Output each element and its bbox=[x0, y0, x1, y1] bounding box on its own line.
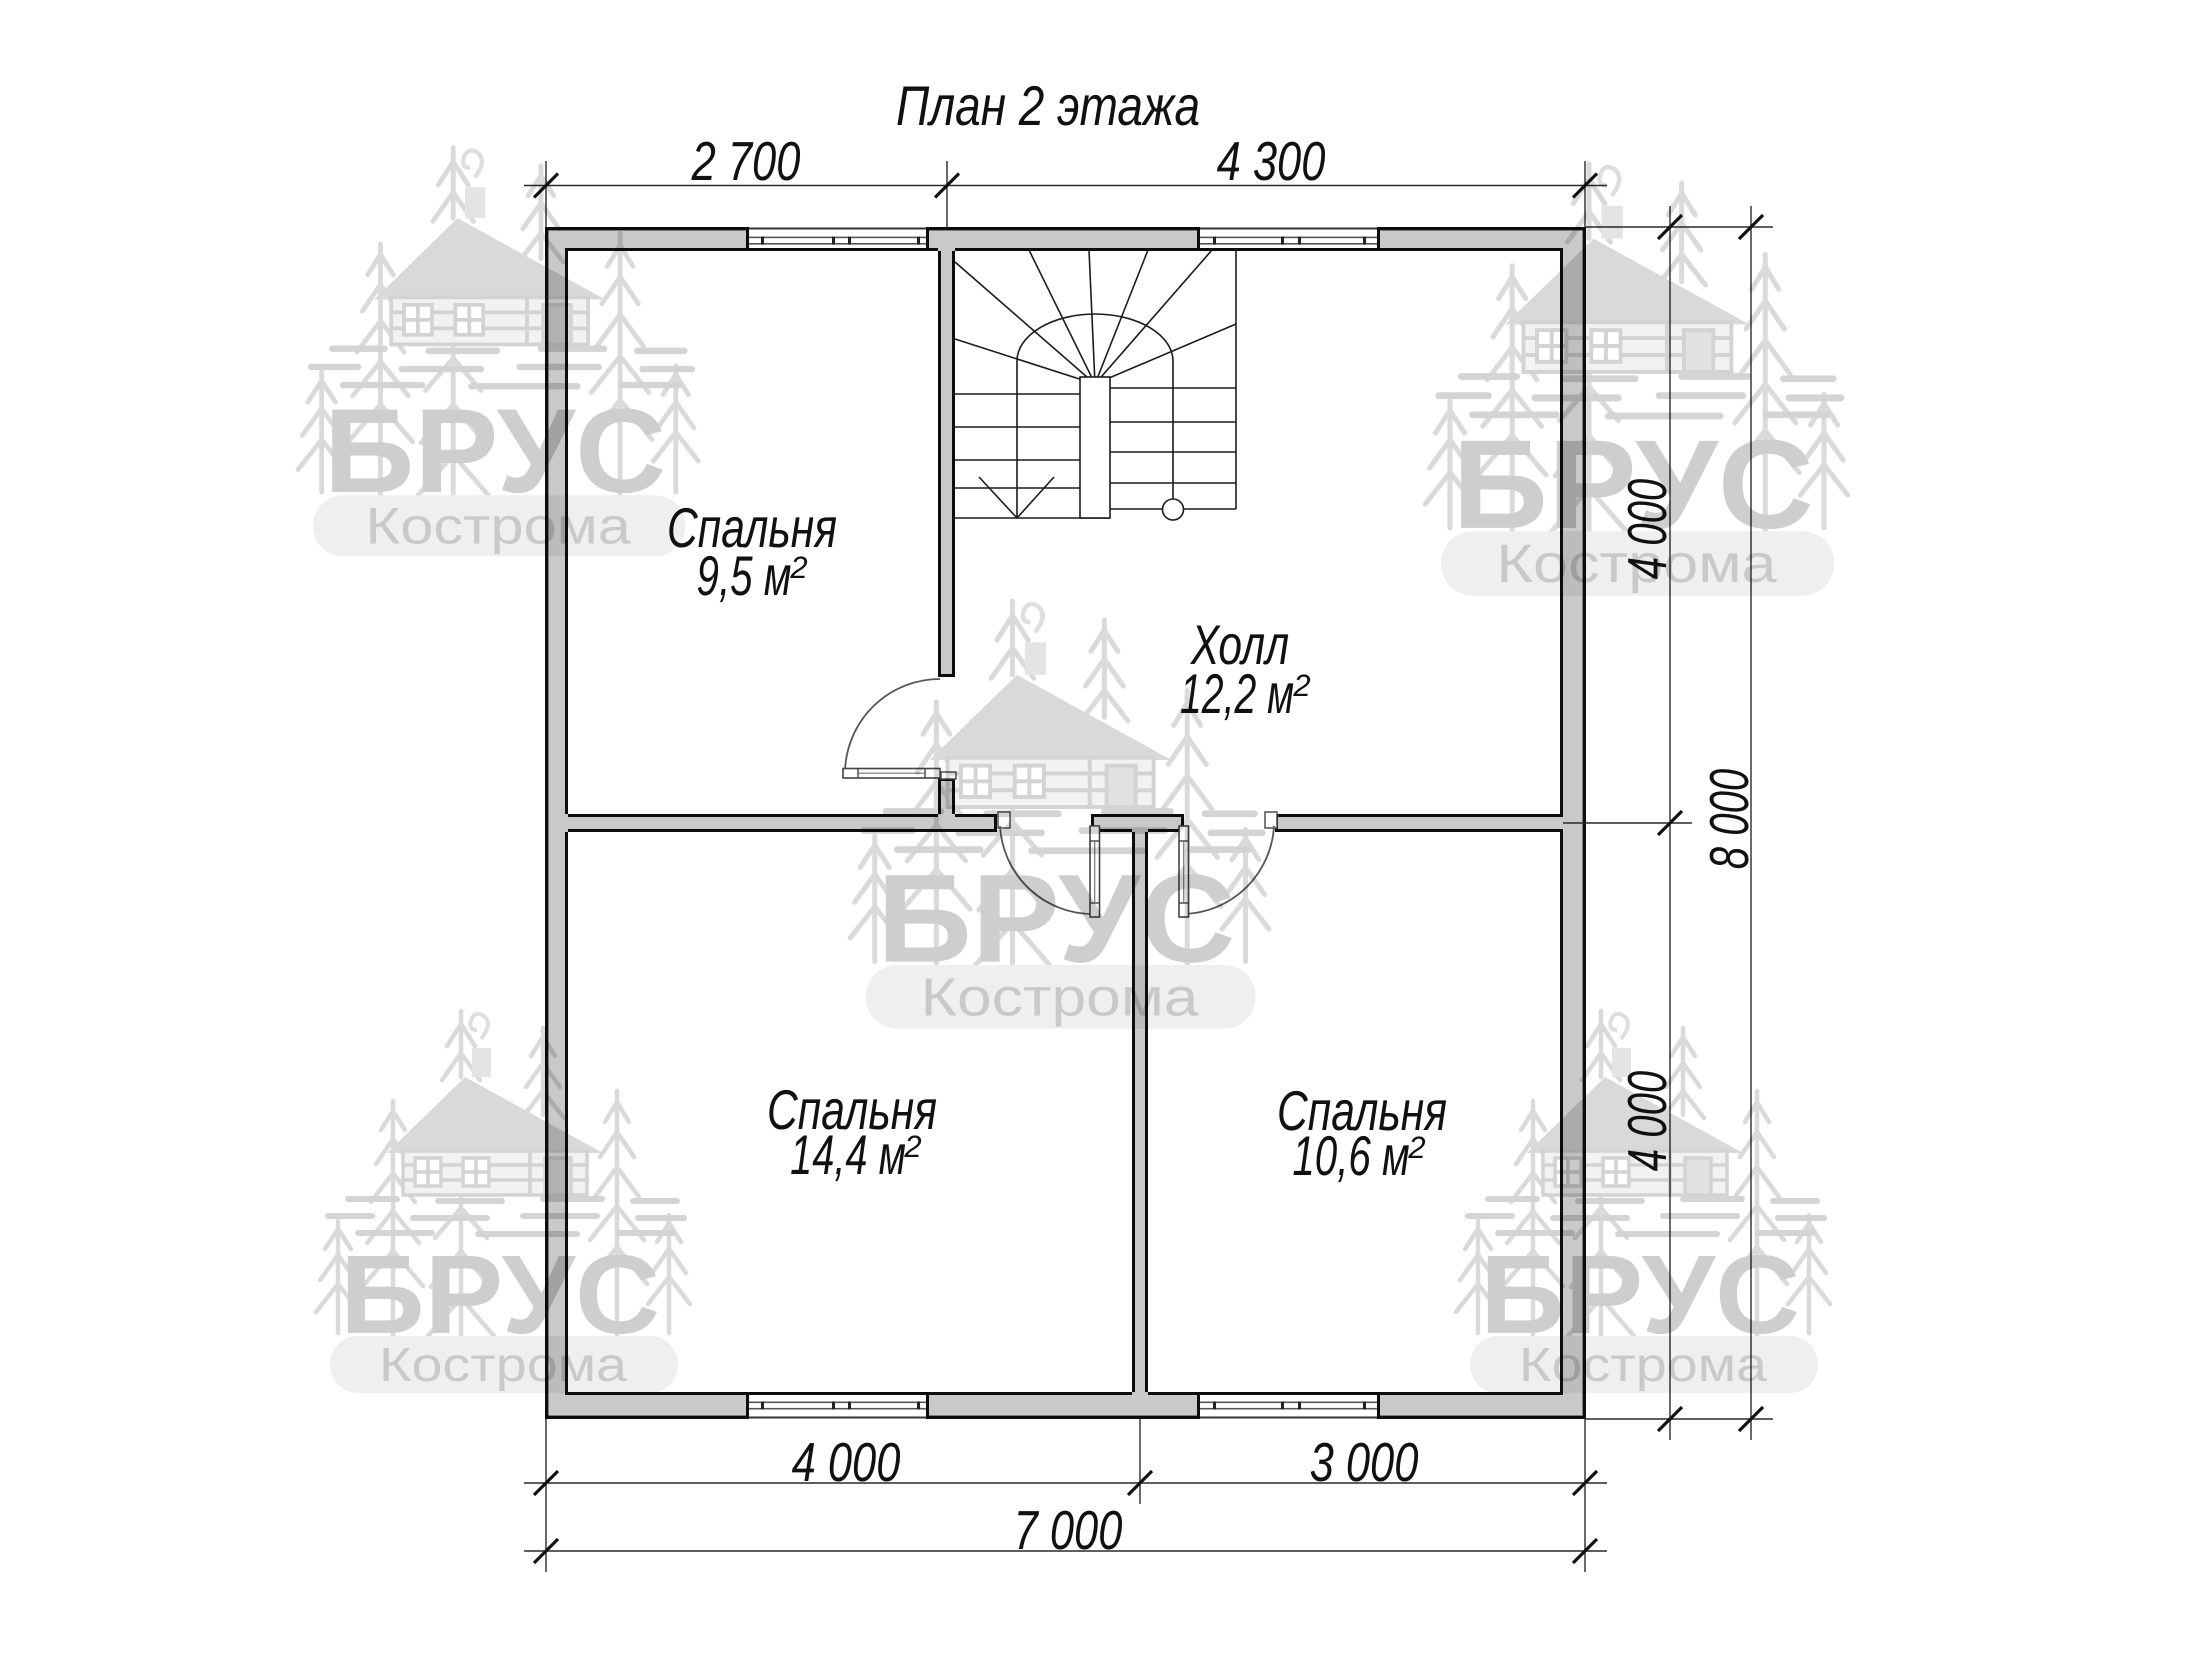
svg-text:2: 2 bbox=[903, 1129, 921, 1164]
svg-text:7 000: 7 000 bbox=[1014, 1499, 1123, 1561]
svg-text:3 000: 3 000 bbox=[1310, 1431, 1419, 1493]
svg-text:2: 2 bbox=[789, 550, 807, 585]
svg-text:10,6 м: 10,6 м bbox=[1292, 1124, 1409, 1187]
svg-text:План 2 этажа: План 2 этажа bbox=[896, 74, 1200, 137]
svg-text:8 000: 8 000 bbox=[1698, 768, 1760, 869]
svg-text:14,4 м: 14,4 м bbox=[790, 1123, 906, 1186]
svg-text:2: 2 bbox=[1407, 1130, 1425, 1165]
svg-text:9,5 м: 9,5 м bbox=[697, 544, 792, 607]
svg-text:4 300: 4 300 bbox=[1217, 130, 1326, 192]
svg-text:2: 2 bbox=[1292, 668, 1310, 703]
svg-text:2 700: 2 700 bbox=[691, 130, 801, 192]
svg-text:4 000: 4 000 bbox=[792, 1431, 901, 1493]
